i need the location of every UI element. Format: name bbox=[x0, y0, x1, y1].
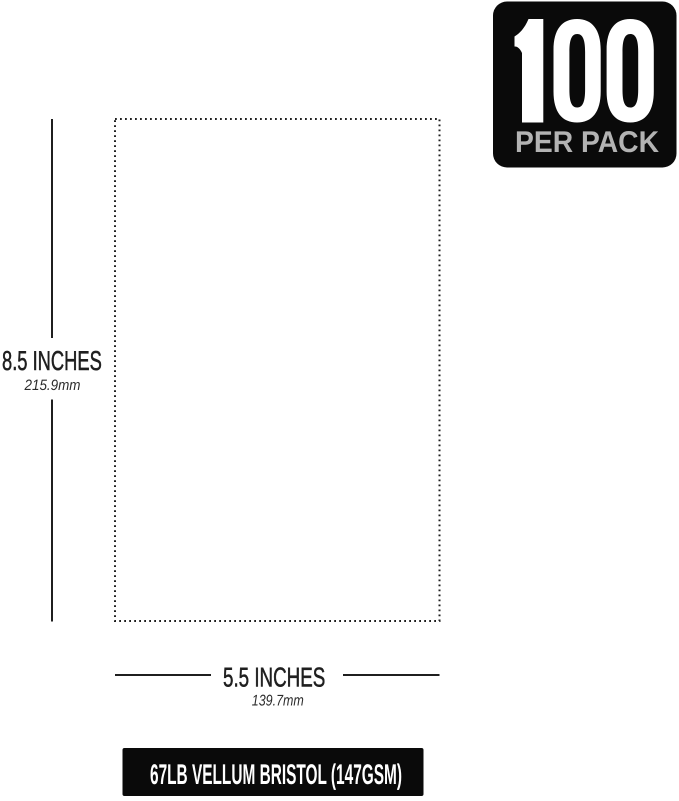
svg-text:8.5 INCHES: 8.5 INCHES bbox=[2, 345, 102, 376]
svg-text:139.7mm: 139.7mm bbox=[252, 693, 304, 710]
svg-text:215.9mm: 215.9mm bbox=[24, 377, 81, 394]
svg-text:67LB VELLUM BRISTOL (147GSM): 67LB VELLUM BRISTOL (147GSM) bbox=[150, 759, 402, 791]
svg-text:5.5 INCHES: 5.5 INCHES bbox=[223, 662, 325, 693]
svg-text:PER PACK: PER PACK bbox=[515, 126, 659, 159]
